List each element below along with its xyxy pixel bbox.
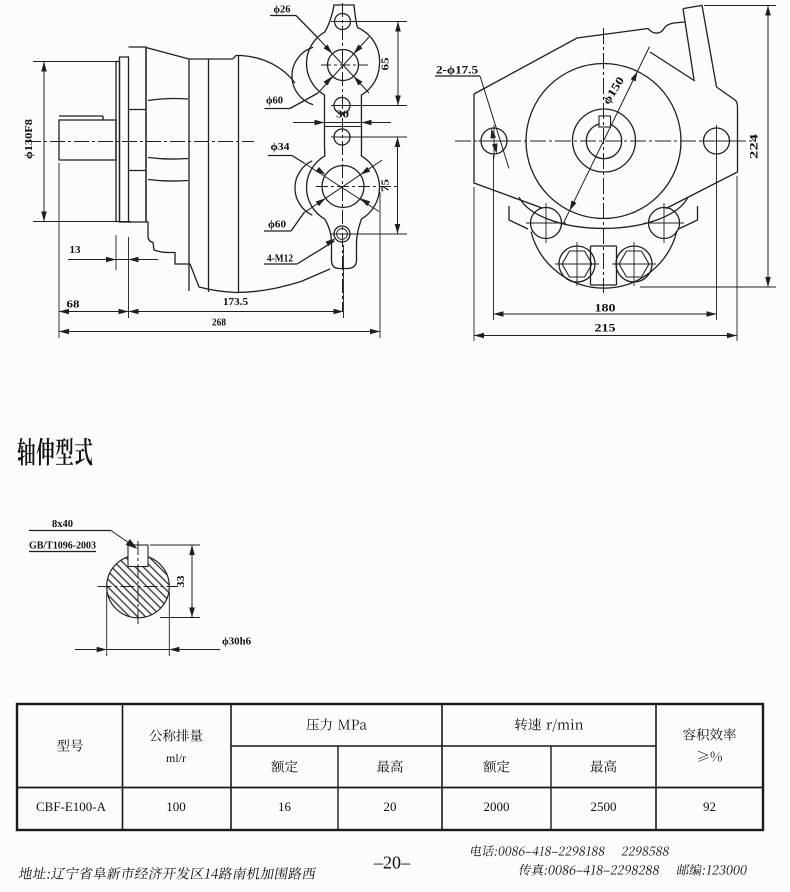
- svg-text:224: 224: [747, 134, 761, 159]
- svg-text:13: 13: [70, 244, 82, 256]
- svg-text:ϕ26: ϕ26: [274, 4, 291, 16]
- svg-text:30: 30: [336, 109, 350, 121]
- svg-text:GB/T1096-2003: GB/T1096-2003: [29, 541, 96, 552]
- svg-text:ϕ34: ϕ34: [271, 141, 291, 153]
- svg-text:215: 215: [595, 321, 616, 335]
- svg-text:180: 180: [595, 301, 616, 315]
- svg-text:75: 75: [380, 178, 392, 192]
- svg-text:268: 268: [212, 317, 226, 329]
- svg-text:2500: 2500: [591, 799, 617, 814]
- svg-text:ϕ60: ϕ60: [268, 219, 286, 231]
- svg-text:ml/r: ml/r: [166, 751, 186, 765]
- svg-text:65: 65: [380, 57, 392, 71]
- svg-text:ϕ30h6: ϕ30h6: [222, 636, 251, 648]
- svg-text:92: 92: [703, 799, 716, 814]
- svg-text:68: 68: [67, 299, 81, 311]
- svg-text:2000: 2000: [484, 799, 510, 814]
- svg-text:2-ϕ17.5: 2-ϕ17.5: [436, 65, 478, 77]
- svg-text:4-M12: 4-M12: [267, 253, 293, 265]
- svg-text:173.5: 173.5: [223, 296, 249, 308]
- svg-text:CBF-E100-A: CBF-E100-A: [36, 799, 107, 814]
- svg-text:16: 16: [278, 799, 292, 814]
- svg-text:ϕ130F8: ϕ130F8: [23, 118, 35, 159]
- svg-text:–20–: –20–: [373, 853, 411, 873]
- svg-text:33: 33: [175, 575, 187, 588]
- svg-text:ϕ60: ϕ60: [266, 95, 283, 107]
- svg-text:100: 100: [166, 799, 186, 814]
- svg-text:20: 20: [384, 799, 397, 814]
- svg-text:8x40: 8x40: [52, 518, 73, 530]
